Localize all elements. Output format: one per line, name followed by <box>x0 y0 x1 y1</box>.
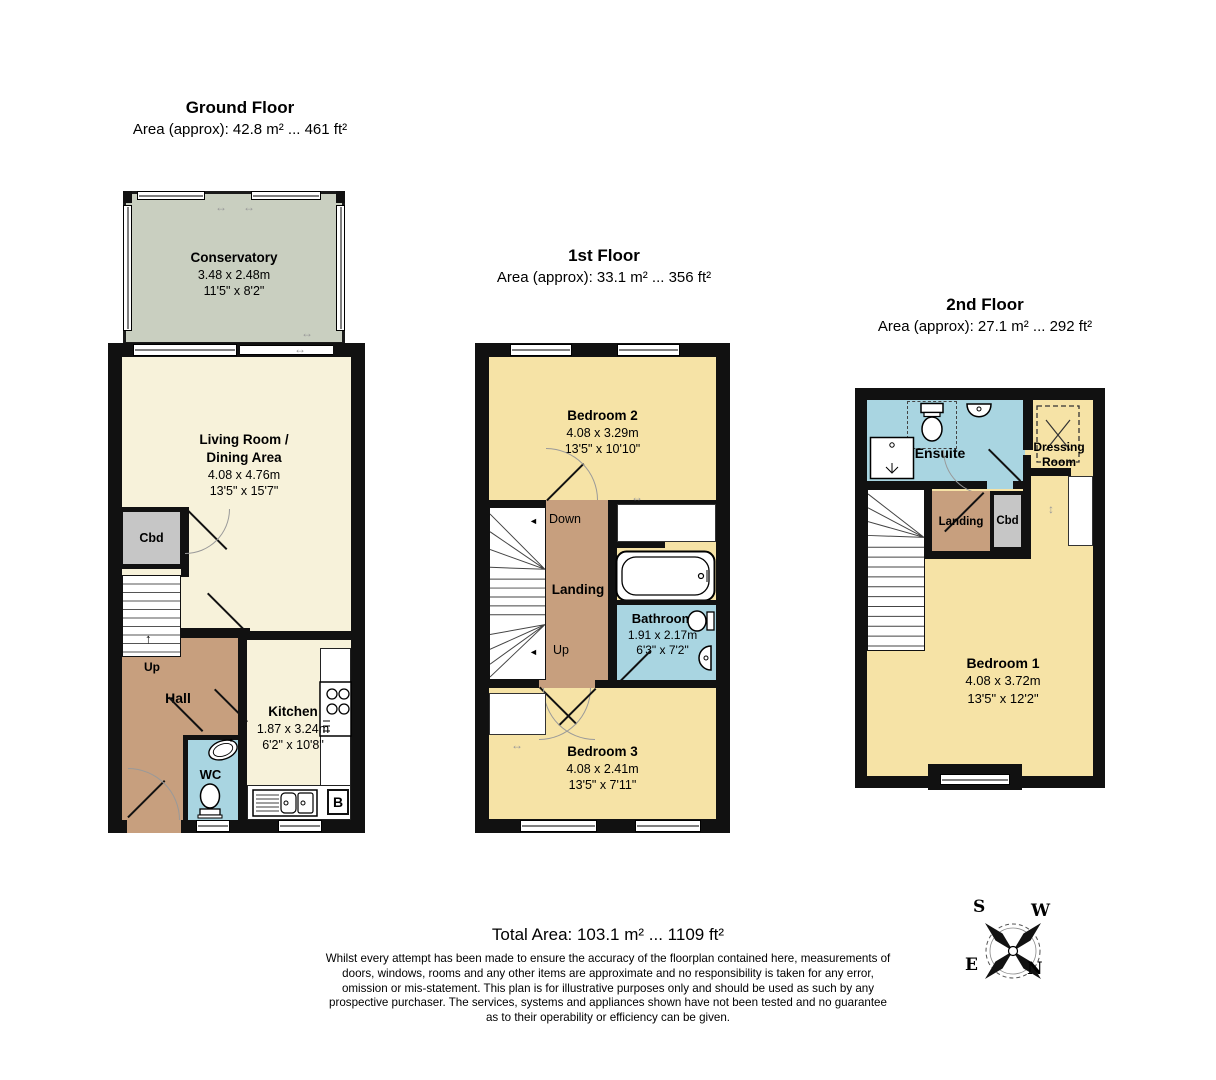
bath-icon <box>615 550 716 602</box>
door-opening <box>987 481 1013 489</box>
stairs-up-label: Up <box>543 644 579 658</box>
boiler-label: B <box>333 794 343 810</box>
room-dim-metric: 4.08 x 3.72m <box>923 672 1083 689</box>
room-name: Dining Area <box>158 449 330 467</box>
stairs-down-label: Down <box>543 513 587 527</box>
bedroom3-label: Bedroom 3 4.08 x 2.41m 13'5" x 7'11" <box>515 743 690 794</box>
toilet-icon <box>195 783 225 819</box>
room-dim-metric: 3.48 x 2.48m <box>123 267 345 284</box>
floorplan-page: Ground Floor Area (approx): 42.8 m² ... … <box>0 0 1216 1080</box>
front-door-opening <box>127 820 181 833</box>
compass-rose-icon: S W E N <box>957 897 1069 1005</box>
compass-east-label: E <box>965 955 978 975</box>
second-floor-plan: Ensuite Dressing Room ↕ Landing <box>855 388 1105 788</box>
room-dim-metric: 4.08 x 2.41m <box>515 761 690 778</box>
basin-icon <box>692 643 714 673</box>
opening-arrow-icon: ↔ <box>294 343 306 355</box>
compass-north-label: N <box>1027 959 1043 979</box>
window <box>278 820 322 832</box>
stairs-up-label: Up <box>132 661 172 674</box>
wall <box>238 638 247 820</box>
wall <box>123 191 132 203</box>
compass-south-label: S <box>973 897 985 917</box>
bedroom1-label: Bedroom 1 4.08 x 3.72m 13'5" x 12'2" <box>923 654 1083 707</box>
room-dim-imperial: 13'5" x 7'11" <box>515 777 690 794</box>
stairs <box>867 489 925 651</box>
kitchen-label: Kitchen 1.87 x 3.24m 6'2" x 10'8" <box>247 703 339 754</box>
wall <box>489 680 716 688</box>
cupboard-room: Cbd <box>990 491 1025 551</box>
room-dim-imperial: 13'5" x 15'7" <box>158 483 330 500</box>
opening-arrow-icon: ↔ <box>243 201 255 213</box>
opening-arrow-icon: ↔ <box>301 327 313 339</box>
window <box>940 774 1010 785</box>
cupboard-label: Cbd <box>996 515 1018 527</box>
opening-to-conservatory <box>240 345 333 355</box>
conservatory-label: Conservatory 3.48 x 2.48m 11'5" x 8'2" <box>123 249 345 300</box>
window <box>510 344 572 356</box>
stairs <box>122 575 181 657</box>
room-dim-imperial: 6'2" x 10'8" <box>247 737 339 754</box>
living-room-label: Living Room / Dining Area 4.08 x 4.76m 1… <box>158 431 330 500</box>
compass-west-label: W <box>1031 901 1050 921</box>
window <box>617 344 680 356</box>
wall <box>925 551 1025 559</box>
wall <box>1025 468 1071 476</box>
ground-floor-plan: ↔ Living Room / Dining Area 4.08 x 4.76m… <box>108 343 365 833</box>
window <box>520 820 597 832</box>
first-floor-plan: Bedroom 2 4.08 x 3.29m 13'5" x 10'10" ◄ … <box>475 343 730 833</box>
door-opening <box>539 680 595 688</box>
window <box>137 191 205 200</box>
wall <box>247 631 351 640</box>
conservatory-room: ↔ ↔ ↔ Conservatory 3.48 x 2.48m 11'5" x … <box>123 191 345 345</box>
boiler-box: B <box>327 789 349 815</box>
wc-label: WC <box>188 768 233 782</box>
bedroom2-label: Bedroom 2 4.08 x 3.29m 13'5" x 10'10" <box>515 407 690 458</box>
basin-icon <box>963 401 995 423</box>
up-arrow-icon: ↑ <box>145 631 152 646</box>
room-name: Dressing <box>1025 440 1093 455</box>
kitchen-sink-icon <box>252 789 318 817</box>
dressing-room-label: Dressing Room <box>1025 440 1093 470</box>
ground-floor-area: Area (approx): 42.8 m² ... 461 ft² <box>60 121 420 138</box>
wall <box>617 542 665 548</box>
room-name: Conservatory <box>123 249 345 267</box>
first-floor-header: 1st Floor Area (approx): 33.1 m² ... 356… <box>424 246 784 286</box>
second-floor-area: Area (approx): 27.1 m² ... 292 ft² <box>805 318 1165 335</box>
opening-arrow-icon: ↔ <box>631 491 643 503</box>
landing-label: Landing <box>538 583 618 598</box>
wall <box>175 628 250 638</box>
second-floor-header: 2nd Floor Area (approx): 27.1 m² ... 292… <box>805 295 1165 335</box>
room-name: Kitchen <box>247 703 339 721</box>
room-dim-imperial: 11'5" x 8'2" <box>123 283 345 300</box>
room-dim-metric: 4.08 x 3.29m <box>515 425 690 442</box>
toilet-icon <box>917 402 947 444</box>
second-floor-title: 2nd Floor <box>805 295 1165 315</box>
room-name: Bedroom 1 <box>923 654 1083 672</box>
room-dim-metric: 1.87 x 3.24m <box>247 721 339 738</box>
window <box>251 191 321 200</box>
window <box>133 344 237 356</box>
closet-box <box>1068 476 1093 546</box>
toilet-icon <box>686 609 716 633</box>
disclaimer-text: Whilst every attempt has been made to en… <box>323 952 893 1026</box>
wall <box>489 500 546 507</box>
cupboard-box <box>617 504 716 542</box>
room-dim-imperial: 13'5" x 12'2" <box>923 690 1083 707</box>
room-dim-imperial: 13'5" x 10'10" <box>515 441 690 458</box>
opening-arrow-icon: ↔ <box>215 201 227 213</box>
cupboard-label: Cbd <box>139 531 163 545</box>
cupboard-room: Cbd <box>118 507 185 569</box>
room-name: Bedroom 2 <box>515 407 690 425</box>
wall <box>336 191 345 203</box>
first-floor-area: Area (approx): 33.1 m² ... 356 ft² <box>424 269 784 286</box>
ground-floor-title: Ground Floor <box>60 98 420 118</box>
room-dim-metric: 4.08 x 4.76m <box>158 467 330 484</box>
left-arrow-icon: ◄ <box>529 647 538 657</box>
left-arrow-icon: ◄ <box>529 516 538 526</box>
ground-floor-header: Ground Floor Area (approx): 42.8 m² ... … <box>60 98 420 138</box>
room-name: Bedroom 3 <box>515 743 690 761</box>
total-area-text: Total Area: 103.1 m² ... 1109 ft² <box>308 925 908 945</box>
opening-arrow-icon: ↕ <box>1048 503 1054 515</box>
wardrobe-box <box>489 693 546 735</box>
window <box>196 820 230 832</box>
landing-label: Landing <box>927 516 995 529</box>
hall-label: Hall <box>138 691 218 706</box>
room-name: Living Room / <box>158 431 330 449</box>
first-floor-title: 1st Floor <box>424 246 784 266</box>
window <box>635 820 701 832</box>
